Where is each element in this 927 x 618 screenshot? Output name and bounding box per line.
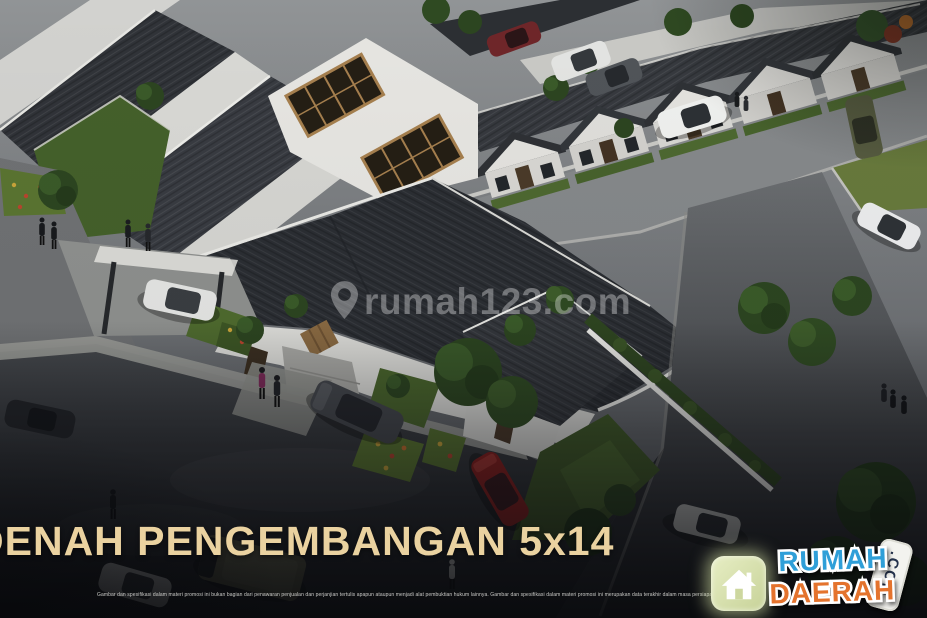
bottom-left-shade [0,300,480,618]
page-title: DENAH PENGEMBANGAN 5x14 [0,521,614,562]
logo-wordmark: RUMAH DAERAH [763,541,927,617]
house-icon [711,556,766,611]
top-right-shade [500,0,927,260]
logo-line2: DAERAH [769,574,896,609]
logo-line1: RUMAH [778,543,888,578]
disclaimer-text: Gambar dan spesifikasi dalam materi prom… [97,592,747,598]
